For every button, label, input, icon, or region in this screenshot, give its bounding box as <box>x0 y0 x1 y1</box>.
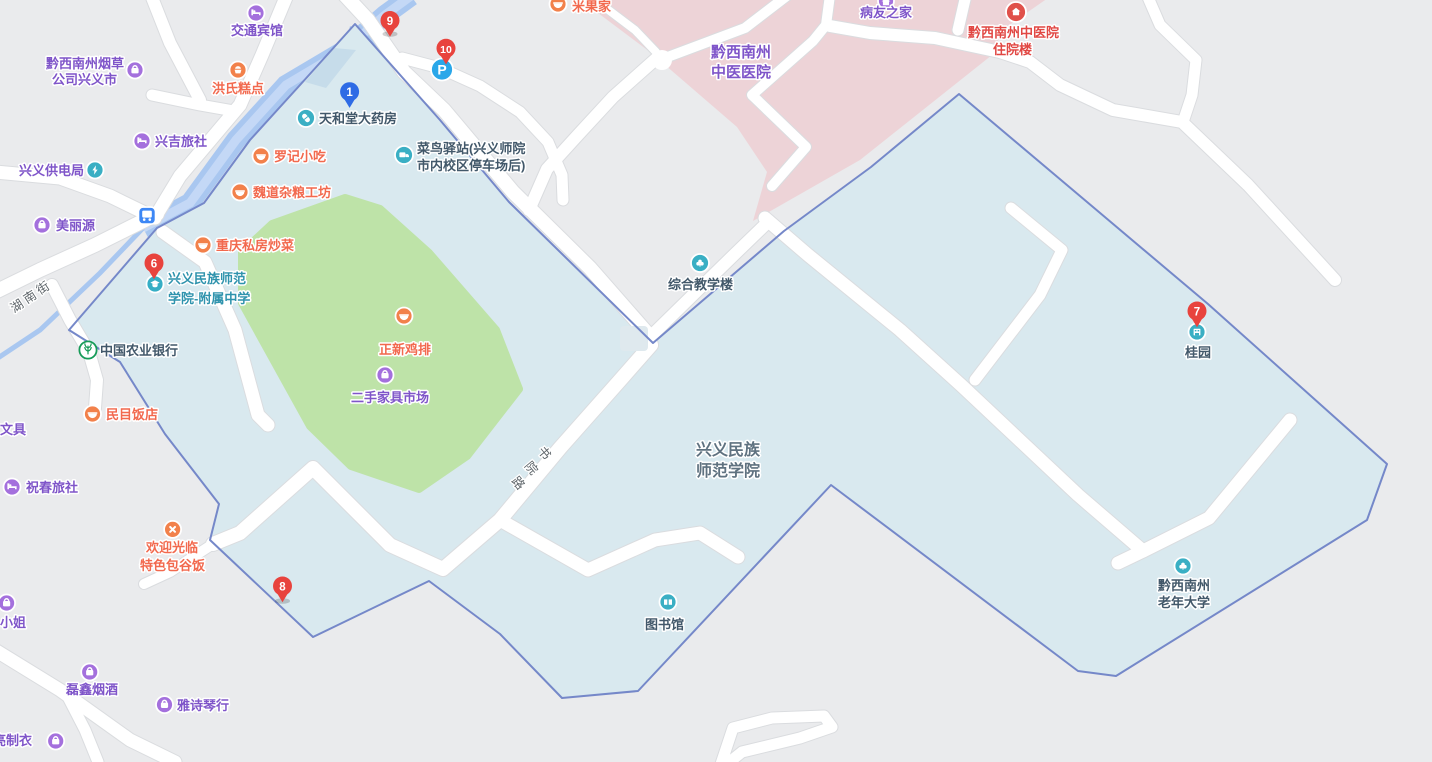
svg-text:住院楼: 住院楼 <box>993 42 1032 57</box>
svg-text:洪氏糕点: 洪氏糕点 <box>212 81 264 96</box>
svg-text:祝春旅社: 祝春旅社 <box>26 480 78 495</box>
svg-text:黔西南州: 黔西南州 <box>711 43 771 61</box>
svg-text:兴吉旅社: 兴吉旅社 <box>155 134 207 149</box>
svg-text:中医医院: 中医医院 <box>711 63 771 81</box>
svg-text:交通宾馆: 交通宾馆 <box>231 23 283 38</box>
svg-text:小姐: 小姐 <box>0 615 26 630</box>
svg-text:天和堂大药房: 天和堂大药房 <box>319 111 397 126</box>
svg-text:黔西南州烟草: 黔西南州烟草 <box>46 56 124 71</box>
svg-text:重庆私房炒菜: 重庆私房炒菜 <box>216 238 294 253</box>
svg-text:图书馆: 图书馆 <box>645 617 684 632</box>
svg-text:月亮制衣: 月亮制衣 <box>0 733 32 748</box>
svg-text:兴义民族师范: 兴义民族师范 <box>168 271 246 286</box>
svg-text:文具: 文具 <box>0 422 26 437</box>
svg-text:黔西南州中医院: 黔西南州中医院 <box>968 25 1059 40</box>
svg-text:民目饭店: 民目饭店 <box>106 407 158 422</box>
svg-text:公司兴义市: 公司兴义市 <box>52 72 117 87</box>
svg-text:中国农业银行: 中国农业银行 <box>100 343 178 358</box>
svg-text:6: 6 <box>151 259 157 271</box>
svg-text:1: 1 <box>346 87 353 99</box>
svg-text:市内校区停车场后): 市内校区停车场后) <box>417 158 525 173</box>
svg-text:综合教学楼: 综合教学楼 <box>668 277 733 292</box>
svg-text:10: 10 <box>440 44 452 56</box>
svg-text:欢迎光临: 欢迎光临 <box>145 540 198 555</box>
svg-text:雅诗琴行: 雅诗琴行 <box>177 698 229 713</box>
svg-text:师范学院: 师范学院 <box>696 461 760 480</box>
svg-text:老年大学: 老年大学 <box>1157 595 1210 610</box>
svg-text:黔西南州: 黔西南州 <box>1158 578 1210 593</box>
svg-text:二手家具市场: 二手家具市场 <box>351 390 429 405</box>
svg-text:学院-附属中学: 学院-附属中学 <box>168 291 250 306</box>
svg-text:病友之家: 病友之家 <box>860 5 913 20</box>
svg-text:8: 8 <box>279 582 286 594</box>
svg-text:正新鸡排: 正新鸡排 <box>379 342 431 357</box>
svg-text:桂园: 桂园 <box>1184 345 1211 360</box>
svg-text:磊鑫烟酒: 磊鑫烟酒 <box>65 682 118 697</box>
svg-text:米果家: 米果家 <box>572 0 612 14</box>
svg-text:9: 9 <box>387 16 393 28</box>
svg-text:7: 7 <box>1194 307 1200 319</box>
svg-text:魏道杂粮工坊: 魏道杂粮工坊 <box>252 185 331 200</box>
svg-text:菜鸟驿站(兴义师院: 菜鸟驿站(兴义师院 <box>416 141 525 156</box>
svg-text:兴义供电局: 兴义供电局 <box>19 163 84 178</box>
svg-text:P: P <box>437 62 446 78</box>
svg-text:兴义民族: 兴义民族 <box>696 440 761 459</box>
svg-text:特色包谷饭: 特色包谷饭 <box>140 558 205 573</box>
svg-text:美丽源: 美丽源 <box>56 218 95 233</box>
svg-text:罗记小吃: 罗记小吃 <box>274 149 326 164</box>
